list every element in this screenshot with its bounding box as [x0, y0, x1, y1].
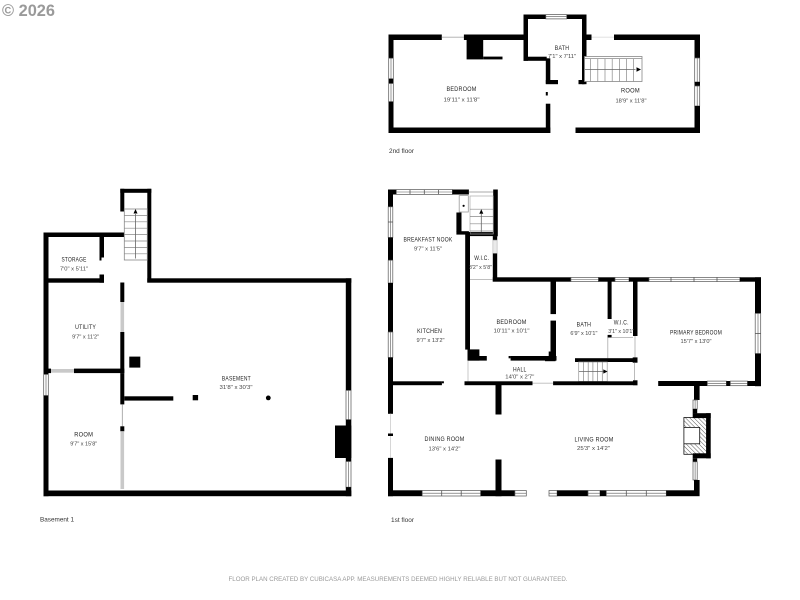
- svg-text:13'6" x 14'2": 13'6" x 14'2": [429, 447, 461, 453]
- svg-text:Basement 1: Basement 1: [40, 517, 74, 524]
- svg-text:3'2" x 5'8": 3'2" x 5'8": [469, 265, 492, 271]
- svg-text:31'8" x 30'3": 31'8" x 30'3": [220, 385, 253, 391]
- svg-text:3'1" x 10'1": 3'1" x 10'1": [608, 329, 634, 335]
- svg-text:7'0" x 5'11": 7'0" x 5'11": [60, 267, 88, 273]
- svg-text:18'9" x 11'8": 18'9" x 11'8": [616, 99, 647, 105]
- svg-text:9'7" x 13'2": 9'7" x 13'2": [417, 338, 445, 344]
- svg-text:14'0" x 2'7": 14'0" x 2'7": [505, 374, 534, 380]
- svg-text:25'3" x 14'2": 25'3" x 14'2": [577, 446, 610, 452]
- svg-text:BASEMENT: BASEMENT: [222, 376, 251, 383]
- svg-text:BEDROOM: BEDROOM: [447, 86, 477, 93]
- svg-text:9'7" x 15'8": 9'7" x 15'8": [70, 442, 97, 448]
- svg-text:HALL: HALL: [513, 367, 527, 374]
- svg-text:9'7" x 11'2": 9'7" x 11'2": [72, 335, 99, 341]
- svg-text:W.I.C.: W.I.C.: [474, 255, 489, 262]
- svg-text:7'1" x 7'11": 7'1" x 7'11": [548, 54, 576, 60]
- svg-text:FLOOR PLAN CREATED BY CUBICASA: FLOOR PLAN CREATED BY CUBICASA APP. MEAS…: [229, 576, 568, 583]
- svg-text:2nd floor: 2nd floor: [389, 148, 415, 155]
- svg-text:10'11" x 10'1": 10'11" x 10'1": [494, 329, 530, 335]
- svg-text:BREAKFAST NOOK: BREAKFAST NOOK: [404, 237, 453, 244]
- svg-text:UTILITY: UTILITY: [75, 324, 96, 331]
- svg-text:© 2026: © 2026: [2, 2, 55, 20]
- svg-text:9'7" x 11'5": 9'7" x 11'5": [414, 247, 442, 253]
- svg-text:W.I.C.: W.I.C.: [614, 320, 629, 327]
- svg-text:BATH: BATH: [577, 322, 592, 329]
- svg-text:6'9" x 10'1": 6'9" x 10'1": [570, 331, 597, 337]
- svg-text:KITCHEN: KITCHEN: [417, 328, 442, 335]
- svg-text:DINING ROOM: DINING ROOM: [425, 436, 465, 443]
- svg-text:BATH: BATH: [555, 45, 570, 52]
- svg-text:PRIMARY BEDROOM: PRIMARY BEDROOM: [670, 330, 722, 337]
- svg-text:ROOM: ROOM: [74, 432, 93, 439]
- svg-text:LIVING ROOM: LIVING ROOM: [575, 437, 614, 444]
- svg-text:15'7" x 13'0": 15'7" x 13'0": [681, 339, 712, 345]
- svg-text:ROOM: ROOM: [621, 88, 640, 95]
- svg-text:19'11" x 11'8": 19'11" x 11'8": [444, 98, 480, 104]
- svg-text:BEDROOM: BEDROOM: [497, 319, 527, 326]
- svg-text:STORAGE: STORAGE: [62, 257, 87, 264]
- svg-text:1st floor: 1st floor: [391, 517, 415, 524]
